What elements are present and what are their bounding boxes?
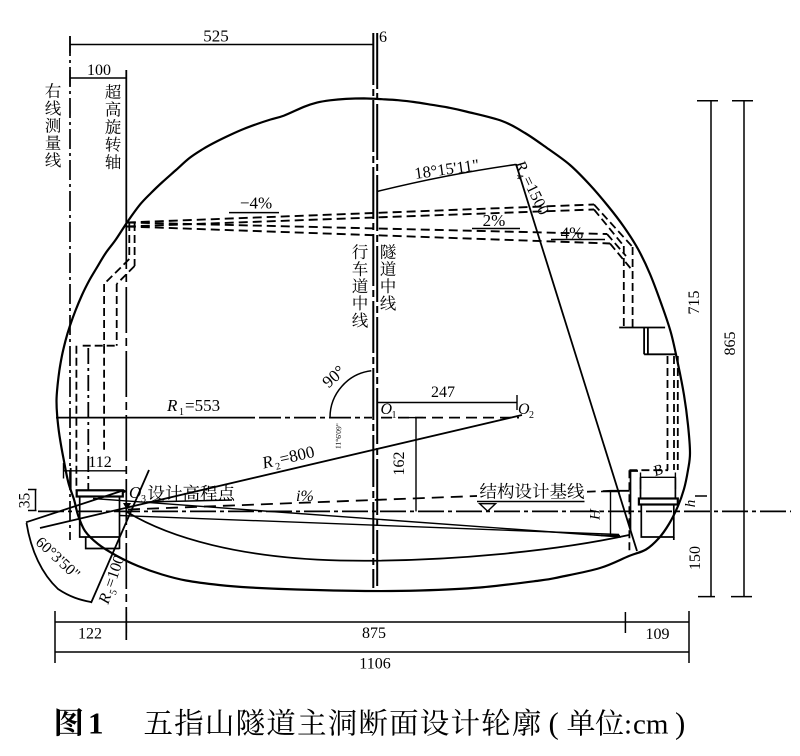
- svg-text:H: H: [588, 508, 604, 521]
- svg-text:109: 109: [646, 626, 670, 643]
- svg-text::: :: [624, 709, 632, 741]
- svg-text:715: 715: [686, 291, 703, 315]
- svg-text:R: R: [166, 396, 178, 415]
- svg-text:150: 150: [687, 546, 704, 570]
- svg-text:(: (: [549, 706, 559, 741]
- svg-text:122: 122: [78, 626, 102, 643]
- svg-text:100: 100: [87, 62, 111, 79]
- svg-text:1: 1: [88, 706, 104, 741]
- svg-text:35: 35: [17, 493, 34, 509]
- svg-text:6: 6: [379, 29, 387, 46]
- svg-text:247: 247: [431, 384, 455, 401]
- svg-text:1106: 1106: [359, 656, 390, 673]
- svg-text:865: 865: [722, 332, 739, 356]
- svg-text:=553: =553: [185, 396, 220, 415]
- svg-text:cm: cm: [633, 709, 669, 741]
- svg-text:1: 1: [179, 407, 184, 418]
- svg-text:525: 525: [203, 27, 229, 46]
- svg-text:2: 2: [529, 410, 534, 421]
- svg-text:875: 875: [362, 625, 386, 642]
- svg-text:): ): [675, 706, 685, 741]
- svg-text:−4%: −4%: [240, 194, 272, 213]
- svg-text:2%: 2%: [483, 211, 506, 230]
- svg-text:i%: i%: [296, 488, 314, 505]
- svg-text:h: h: [683, 500, 699, 508]
- svg-text:112: 112: [88, 454, 111, 471]
- svg-text:162: 162: [391, 452, 408, 476]
- svg-text:1: 1: [392, 410, 397, 421]
- svg-text:11°6'09": 11°6'09": [334, 423, 344, 449]
